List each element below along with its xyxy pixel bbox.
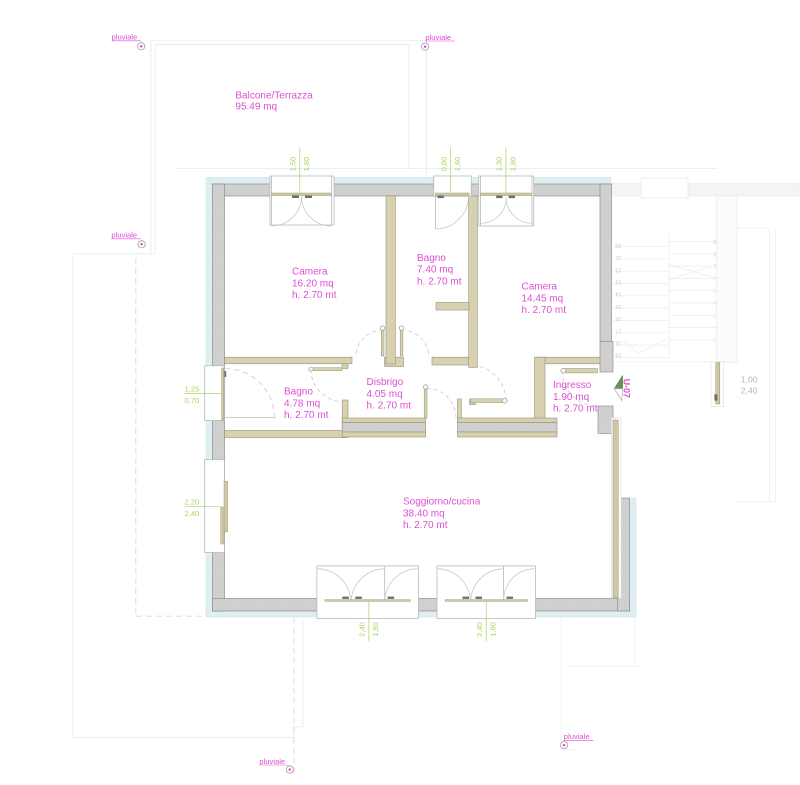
- svg-text:15: 15: [615, 303, 621, 309]
- svg-text:0,80: 0,80: [439, 157, 448, 172]
- svg-text:2,40: 2,40: [475, 622, 484, 637]
- svg-text:U-07: U-07: [622, 379, 632, 398]
- svg-text:Camera: Camera: [522, 282, 558, 293]
- svg-text:8: 8: [713, 252, 716, 258]
- svg-text:h. 2.70 mt: h. 2.70 mt: [403, 520, 448, 531]
- svg-text:2,40: 2,40: [185, 509, 200, 518]
- svg-text:h. 2.70 mt: h. 2.70 mt: [553, 404, 598, 415]
- svg-text:Camera: Camera: [292, 267, 328, 278]
- svg-text:1,80: 1,80: [371, 622, 380, 637]
- svg-text:2: 2: [713, 326, 716, 332]
- svg-text:pluviale: pluviale: [425, 33, 451, 42]
- svg-text:1,50: 1,50: [289, 157, 298, 172]
- svg-text:pluviale: pluviale: [111, 231, 137, 240]
- svg-text:19: 19: [615, 352, 621, 358]
- svg-text:3: 3: [713, 313, 716, 319]
- svg-text:2,40: 2,40: [741, 386, 758, 396]
- svg-text:5: 5: [713, 289, 716, 295]
- svg-text:16.20 mq: 16.20 mq: [292, 278, 334, 289]
- svg-text:11: 11: [616, 254, 622, 260]
- svg-text:Soggiorno/cucina: Soggiorno/cucina: [403, 497, 481, 508]
- svg-text:14.45 mq: 14.45 mq: [522, 293, 564, 304]
- svg-text:1,60: 1,60: [453, 157, 462, 172]
- svg-text:95.49 mq: 95.49 mq: [235, 102, 277, 113]
- svg-text:h. 2.70 mt: h. 2.70 mt: [284, 410, 329, 421]
- svg-text:14: 14: [615, 291, 621, 297]
- svg-text:pluviale: pluviale: [112, 33, 138, 42]
- svg-text:Disbrigo: Disbrigo: [367, 377, 404, 388]
- svg-text:h. 2.70 mt: h. 2.70 mt: [367, 401, 412, 412]
- svg-text:Ingresso: Ingresso: [553, 380, 592, 391]
- svg-text:pluviale: pluviale: [564, 732, 590, 741]
- svg-text:13: 13: [615, 278, 621, 284]
- svg-text:1: 1: [713, 338, 716, 344]
- svg-text:Bagno: Bagno: [417, 253, 446, 264]
- svg-text:2,20: 2,20: [185, 497, 200, 506]
- svg-text:h. 2.70 mt: h. 2.70 mt: [292, 290, 337, 301]
- svg-text:h. 2.70 mt: h. 2.70 mt: [522, 305, 567, 316]
- svg-text:Balcone/Terrazza: Balcone/Terrazza: [235, 91, 313, 102]
- svg-text:pluviale: pluviale: [259, 757, 285, 766]
- svg-text:7: 7: [713, 265, 716, 271]
- svg-text:4.78 mq: 4.78 mq: [284, 398, 320, 409]
- svg-text:12: 12: [615, 266, 621, 272]
- svg-text:1,00: 1,00: [741, 374, 758, 384]
- svg-text:10: 10: [615, 242, 621, 248]
- svg-text:1.90 mq: 1.90 mq: [553, 392, 589, 403]
- svg-text:18: 18: [615, 339, 621, 345]
- svg-text:6: 6: [713, 277, 716, 283]
- svg-text:1,80: 1,80: [488, 622, 497, 637]
- svg-text:38.40 mq: 38.40 mq: [403, 508, 445, 519]
- svg-text:1,80: 1,80: [302, 157, 311, 172]
- svg-text:16: 16: [615, 315, 621, 321]
- svg-text:4.05 mq: 4.05 mq: [367, 389, 403, 400]
- svg-text:1,80: 1,80: [508, 157, 517, 172]
- svg-text:1,25: 1,25: [185, 385, 200, 394]
- svg-text:Bagno: Bagno: [284, 387, 313, 398]
- svg-text:1,30: 1,30: [495, 157, 504, 172]
- svg-text:4: 4: [713, 301, 716, 307]
- svg-text:17: 17: [615, 327, 621, 333]
- svg-text:h. 2.70 mt: h. 2.70 mt: [417, 276, 462, 287]
- svg-text:2,40: 2,40: [358, 622, 367, 637]
- svg-text:7.40 mq: 7.40 mq: [417, 265, 453, 276]
- svg-text:0,70: 0,70: [185, 396, 200, 405]
- svg-text:9: 9: [713, 240, 716, 246]
